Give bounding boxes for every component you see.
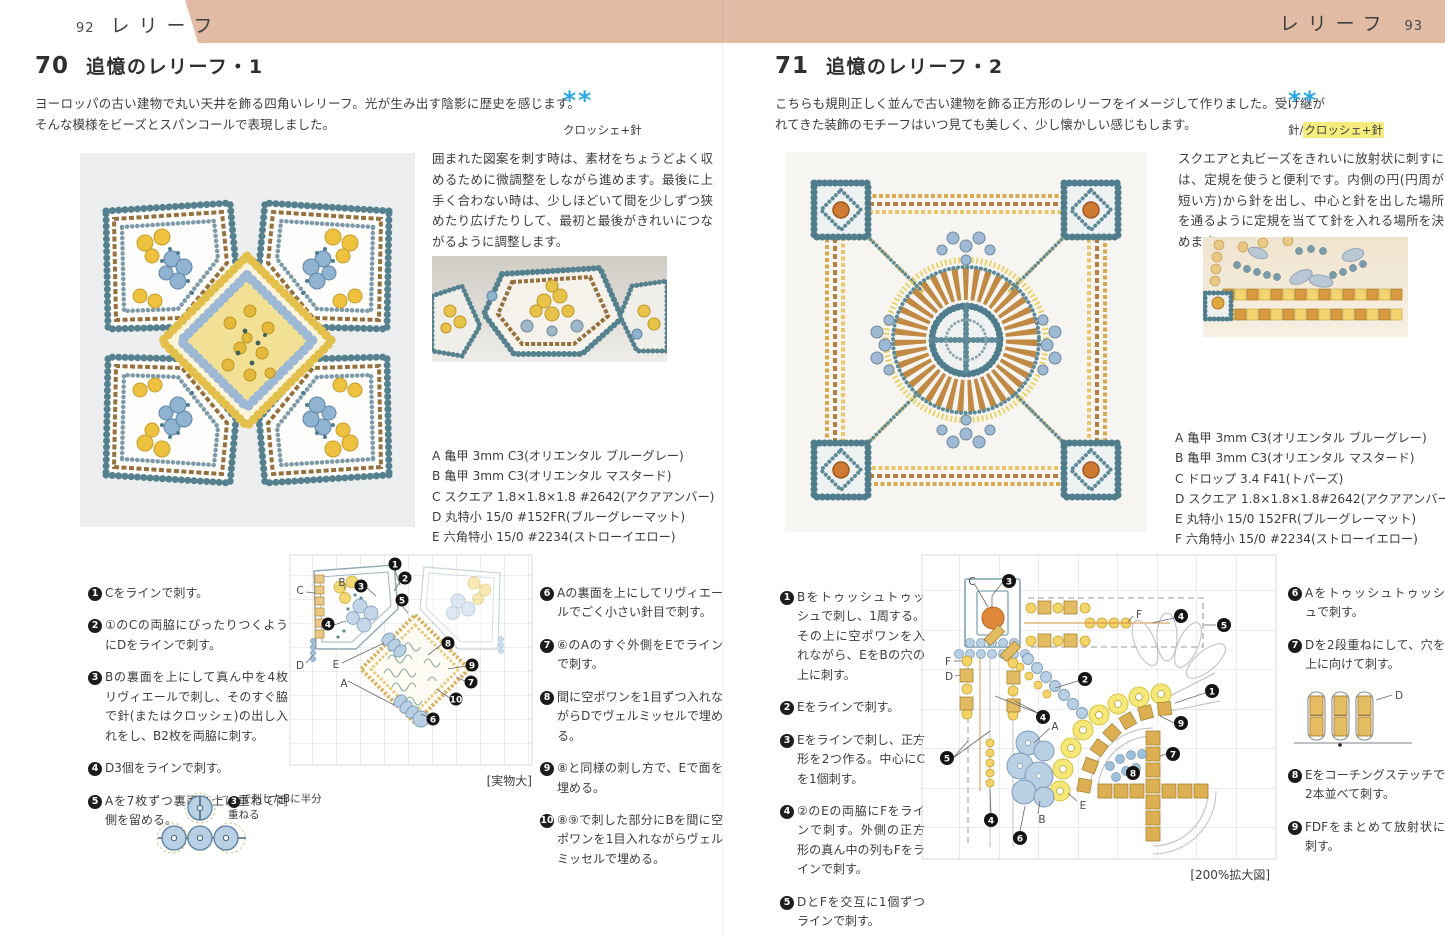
item-71-number: 71 (775, 53, 809, 79)
diagram-71-scale-label: [200%拡大図] (1150, 866, 1270, 883)
section-banner (185, 0, 1445, 43)
item-71-steps-col2: 6Aをトゥッシュトゥッシュで刺す。 7Dを2段重ねにして、穴を上に向けて刺す。 (1288, 584, 1445, 870)
step7-mini-diagram: D (1294, 688, 1445, 754)
item-71-steps-col1: 1Bをトゥッシュトゥッシュで刺し、1周する。その上に空ポワンを入れながら、EをB… (780, 588, 925, 939)
technique-label: クロッシェ+針 (563, 122, 642, 138)
material-line: D 丸特小 15/0 #152FR(ブルーグレーマット) (432, 507, 714, 527)
diagram-step-marker: 10 (450, 693, 463, 706)
item-71-title-row: 71 追憶のレリーフ・2 (775, 52, 1004, 79)
step5-note: 3で刺したBに半分重ねる (228, 792, 328, 823)
item-71-diagram: C F F D A E B 3 4 5 2 1 4 9 7 8 5 4 6 (920, 551, 1285, 869)
diagram-step-marker: 6 (427, 713, 440, 726)
step-4: 4②のEの両脇にFをラインで刺す。外側の正方形の真ん中の列もFをラインで刺す。 (780, 802, 925, 880)
diagram-letter-E: E (1080, 800, 1087, 812)
material-line: E 六角特小 15/0 #2234(ストローイエロー) (432, 527, 714, 547)
diagram-step-marker: 2 (399, 572, 412, 585)
step-3: 3Eをラインで刺し、正方形を2つ作る。中心にCを1個刺す。 (780, 731, 925, 789)
beadwork-70-illustration (80, 153, 415, 527)
step-number-badge: 9 (1288, 821, 1302, 835)
diagram-letter-A: A (1051, 721, 1059, 733)
item-70-title-row: 70 追憶のレリーフ・1 (35, 52, 264, 79)
svg-text:5: 5 (399, 597, 405, 607)
svg-text:1: 1 (392, 561, 398, 571)
diagram-step-marker: 5 (940, 751, 954, 765)
material-line: A 亀甲 3mm C3(オリエンタル ブルーグレー) (432, 446, 714, 466)
step-9: 9FDFをまとめて放射状に刺す。 (1288, 818, 1445, 857)
note-step-badge: 3 (228, 796, 240, 808)
svg-text:5: 5 (1221, 622, 1227, 632)
diagram-step-marker: 9 (466, 659, 479, 672)
step-number-badge: 4 (88, 762, 102, 776)
step-number-badge: 8 (540, 691, 554, 705)
left-section-title: レリーフ (111, 11, 222, 38)
svg-text:5: 5 (944, 755, 950, 765)
step-number-badge: 3 (88, 671, 102, 685)
step-number-badge: 9 (540, 762, 554, 776)
step-number-badge: 7 (1288, 639, 1302, 653)
svg-text:2: 2 (1082, 676, 1088, 686)
step-7: 7Dを2段重ねにして、穴を上に向けて刺す。 (1288, 636, 1445, 675)
step-5: 5DとFを交互に1個ずつラインで刺す。 (780, 893, 925, 932)
item-71-detail-photo (1203, 237, 1408, 337)
diagram-letter-F: F (945, 656, 951, 668)
beadwork-71-illustration (785, 152, 1147, 532)
material-line: E 丸特小 15/0 152FR(ブルーグレーマット) (1175, 509, 1445, 529)
item-70-steps-col2: 6Aの裏面を上にしてリヴィエールでごく小さい針目で刺す。 7⑥のAのすぐ外側をE… (540, 584, 723, 882)
diagram-letter-B: B (338, 577, 345, 589)
step-8: 8間に空ポワンを1目ずつ入れながらDでヴェルミッセルで埋める。 (540, 688, 723, 746)
diagram-step-marker: 1 (389, 558, 402, 571)
material-line: B 亀甲 3mm C3(オリエンタル マスタード) (1175, 448, 1445, 468)
material-line: A 亀甲 3mm C3(オリエンタル ブルーグレー) (1175, 428, 1445, 448)
material-line: C スクエア 1.8×1.8×1.8 #2642(アクアアンバー) (432, 487, 714, 507)
step-number-badge: 4 (780, 805, 794, 819)
item-71-main-photo (785, 152, 1147, 532)
item-70-number: 70 (35, 53, 69, 79)
svg-text:4: 4 (1040, 714, 1046, 724)
item-70-diagram: C B D E A 1 2 3 5 4 8 9 7 10 6 (288, 551, 533, 773)
item-71-difficulty: ** 針/クロッシェ+針 (1288, 88, 1384, 138)
step-7: 7⑥のAのすぐ外側をEでラインで刺す。 (540, 636, 723, 675)
svg-text:7: 7 (1170, 751, 1176, 761)
mini-diagram-letter-D: D (1395, 690, 1403, 702)
beadwork-70-closeup (432, 256, 667, 362)
svg-text:4: 4 (1178, 613, 1184, 623)
svg-text:9: 9 (1178, 720, 1184, 730)
step-number-badge: 6 (1288, 587, 1302, 601)
step-number-badge: 5 (780, 896, 794, 910)
diagram-letter-E: E (333, 659, 340, 671)
diagram-step-marker: 8 (1126, 766, 1140, 780)
svg-text:6: 6 (1017, 835, 1023, 845)
svg-text:7: 7 (468, 679, 474, 689)
diagram-70-scale-label: [実物大] (452, 772, 532, 789)
difficulty-stars-icon: ** (563, 88, 642, 113)
svg-text:4: 4 (988, 817, 994, 827)
item-71-description: こちらも規則正しく並んで古い建物を飾る正方形のレリーフをイメージして作りました。… (775, 93, 1325, 135)
step-1: 1Cをラインで刺す。 (88, 584, 288, 603)
diagram-letter-F: F (1136, 609, 1142, 621)
diagram-letter-D: D (945, 671, 953, 683)
step-number-badge: 3 (780, 734, 794, 748)
step-number-badge: 1 (88, 587, 102, 601)
svg-text:3: 3 (358, 583, 364, 593)
diagram-step-marker: 4 (1174, 609, 1188, 623)
technique-highlight: クロッシェ+針 (1303, 122, 1384, 138)
step-number-badge: 10 (540, 814, 554, 828)
step-2: 2Eをラインで刺す。 (780, 698, 925, 717)
diagram-letter-B: B (1038, 814, 1045, 826)
diagram-step-marker: 7 (465, 676, 478, 689)
item-70-detail-photo (432, 256, 667, 362)
technique-label: 針/クロッシェ+針 (1288, 122, 1384, 138)
svg-text:3: 3 (1006, 578, 1012, 588)
left-page-number: 92 (76, 21, 95, 36)
item-70-main-photo (80, 153, 415, 527)
step-6: 6Aの裏面を上にしてリヴィエールでごく小さい針目で刺す。 (540, 584, 723, 623)
diagram-step-marker: 4 (984, 813, 998, 827)
diagram-step-marker: 8 (442, 637, 455, 650)
item-70-difficulty: ** クロッシェ+針 (563, 88, 642, 138)
diagram-letter-A: A (340, 678, 348, 690)
left-page-header: 92 レリーフ (76, 11, 221, 38)
step-2: 2①のCの両脇にぴったりつくようにDをラインで刺す。 (88, 616, 288, 655)
step-1: 1Bをトゥッシュトゥッシュで刺し、1周する。その上に空ポワンを入れながら、EをB… (780, 588, 925, 685)
step-8: 8Eをコーチングステッチで2本並べて刺す。 (1288, 766, 1445, 805)
material-line: D スクエア 1.8×1.8×1.8#2642(アクアアンバー) (1175, 489, 1445, 509)
step-number-badge: 7 (540, 639, 554, 653)
step-3: 3Bの裏面を上にして真ん中を4枚リヴィエールで刺し、そのすぐ脇で針(またはクロッ… (88, 668, 288, 746)
diagram-step-marker: 5 (1217, 618, 1231, 632)
item-70-tip: 囲まれた図案を刺す時は、素材をちょうどよく収めるために微調整をしながら進めます。… (432, 149, 713, 253)
step-6: 6Aをトゥッシュトゥッシュで刺す。 (1288, 584, 1445, 623)
svg-text:2: 2 (402, 575, 408, 585)
difficulty-stars-icon: ** (1288, 88, 1384, 113)
material-line: F 六角特小 15/0 #2234(ストローイエロー) (1175, 529, 1445, 549)
diagram-step-marker: 6 (1013, 831, 1027, 845)
diagram-letter-C: C (968, 576, 975, 588)
right-section-title: レリーフ (1280, 9, 1391, 36)
step-number-badge: 6 (540, 587, 554, 601)
diagram-step-marker: 4 (322, 618, 335, 631)
item-71-title: 追憶のレリーフ・2 (826, 52, 1004, 79)
svg-text:9: 9 (469, 662, 475, 672)
step-4: 4D3個をラインで刺す。 (88, 759, 288, 778)
step-number-badge: 5 (88, 795, 102, 809)
step-number-badge: 2 (780, 701, 794, 715)
right-page-number: 93 (1404, 19, 1423, 34)
svg-text:6: 6 (430, 716, 436, 726)
svg-text:10: 10 (450, 696, 463, 706)
diagram-letter-C: C (296, 585, 303, 597)
book-spread: 92 レリーフ レリーフ 93 70 追憶のレリーフ・1 ヨーロッパの古い建物で… (0, 0, 1445, 939)
diagram-step-marker: 3 (355, 580, 368, 593)
diagram-step-marker: 4 (1036, 710, 1050, 724)
diagram-step-marker: 3 (1002, 574, 1016, 588)
diagram-step-marker: 5 (396, 594, 409, 607)
item-70-description: ヨーロッパの古い建物で丸い天井を飾る四角いレリーフ。光が生み出す陰影に歴史を感じ… (35, 93, 580, 135)
material-line: C ドロップ 3.4 F41(トパーズ) (1175, 469, 1445, 489)
svg-text:1: 1 (1209, 688, 1215, 698)
svg-text:8: 8 (1130, 770, 1136, 780)
step-10: 10⑧⑨で刺した部分にBを間に空ポワンを1目入れながらヴェルミッセルで埋める。 (540, 811, 723, 869)
step-9: 9⑧と同様の刺し方で、Eで面を埋める。 (540, 759, 723, 798)
step-number-badge: 1 (780, 591, 794, 605)
diagram-letter-D: D (296, 660, 304, 672)
diagram-step-marker: 1 (1205, 684, 1219, 698)
svg-text:4: 4 (325, 621, 331, 631)
center-medallion (886, 260, 1046, 420)
step-number-badge: 8 (1288, 769, 1302, 783)
diagram-step-marker: 9 (1174, 716, 1188, 730)
item-70-materials: A 亀甲 3mm C3(オリエンタル ブルーグレー) B 亀甲 3mm C3(オ… (432, 446, 714, 547)
right-page-header: レリーフ 93 (1280, 9, 1423, 36)
beadwork-71-closeup (1203, 237, 1408, 337)
diagram-step-marker: 7 (1166, 747, 1180, 761)
material-line: B 亀甲 3mm C3(オリエンタル マスタード) (432, 466, 714, 486)
diagram-step-marker: 2 (1078, 672, 1092, 686)
item-71-materials: A 亀甲 3mm C3(オリエンタル ブルーグレー) B 亀甲 3mm C3(オ… (1175, 428, 1445, 550)
svg-text:8: 8 (445, 640, 451, 650)
item-70-title: 追憶のレリーフ・1 (86, 52, 264, 79)
step-number-badge: 2 (88, 619, 102, 633)
